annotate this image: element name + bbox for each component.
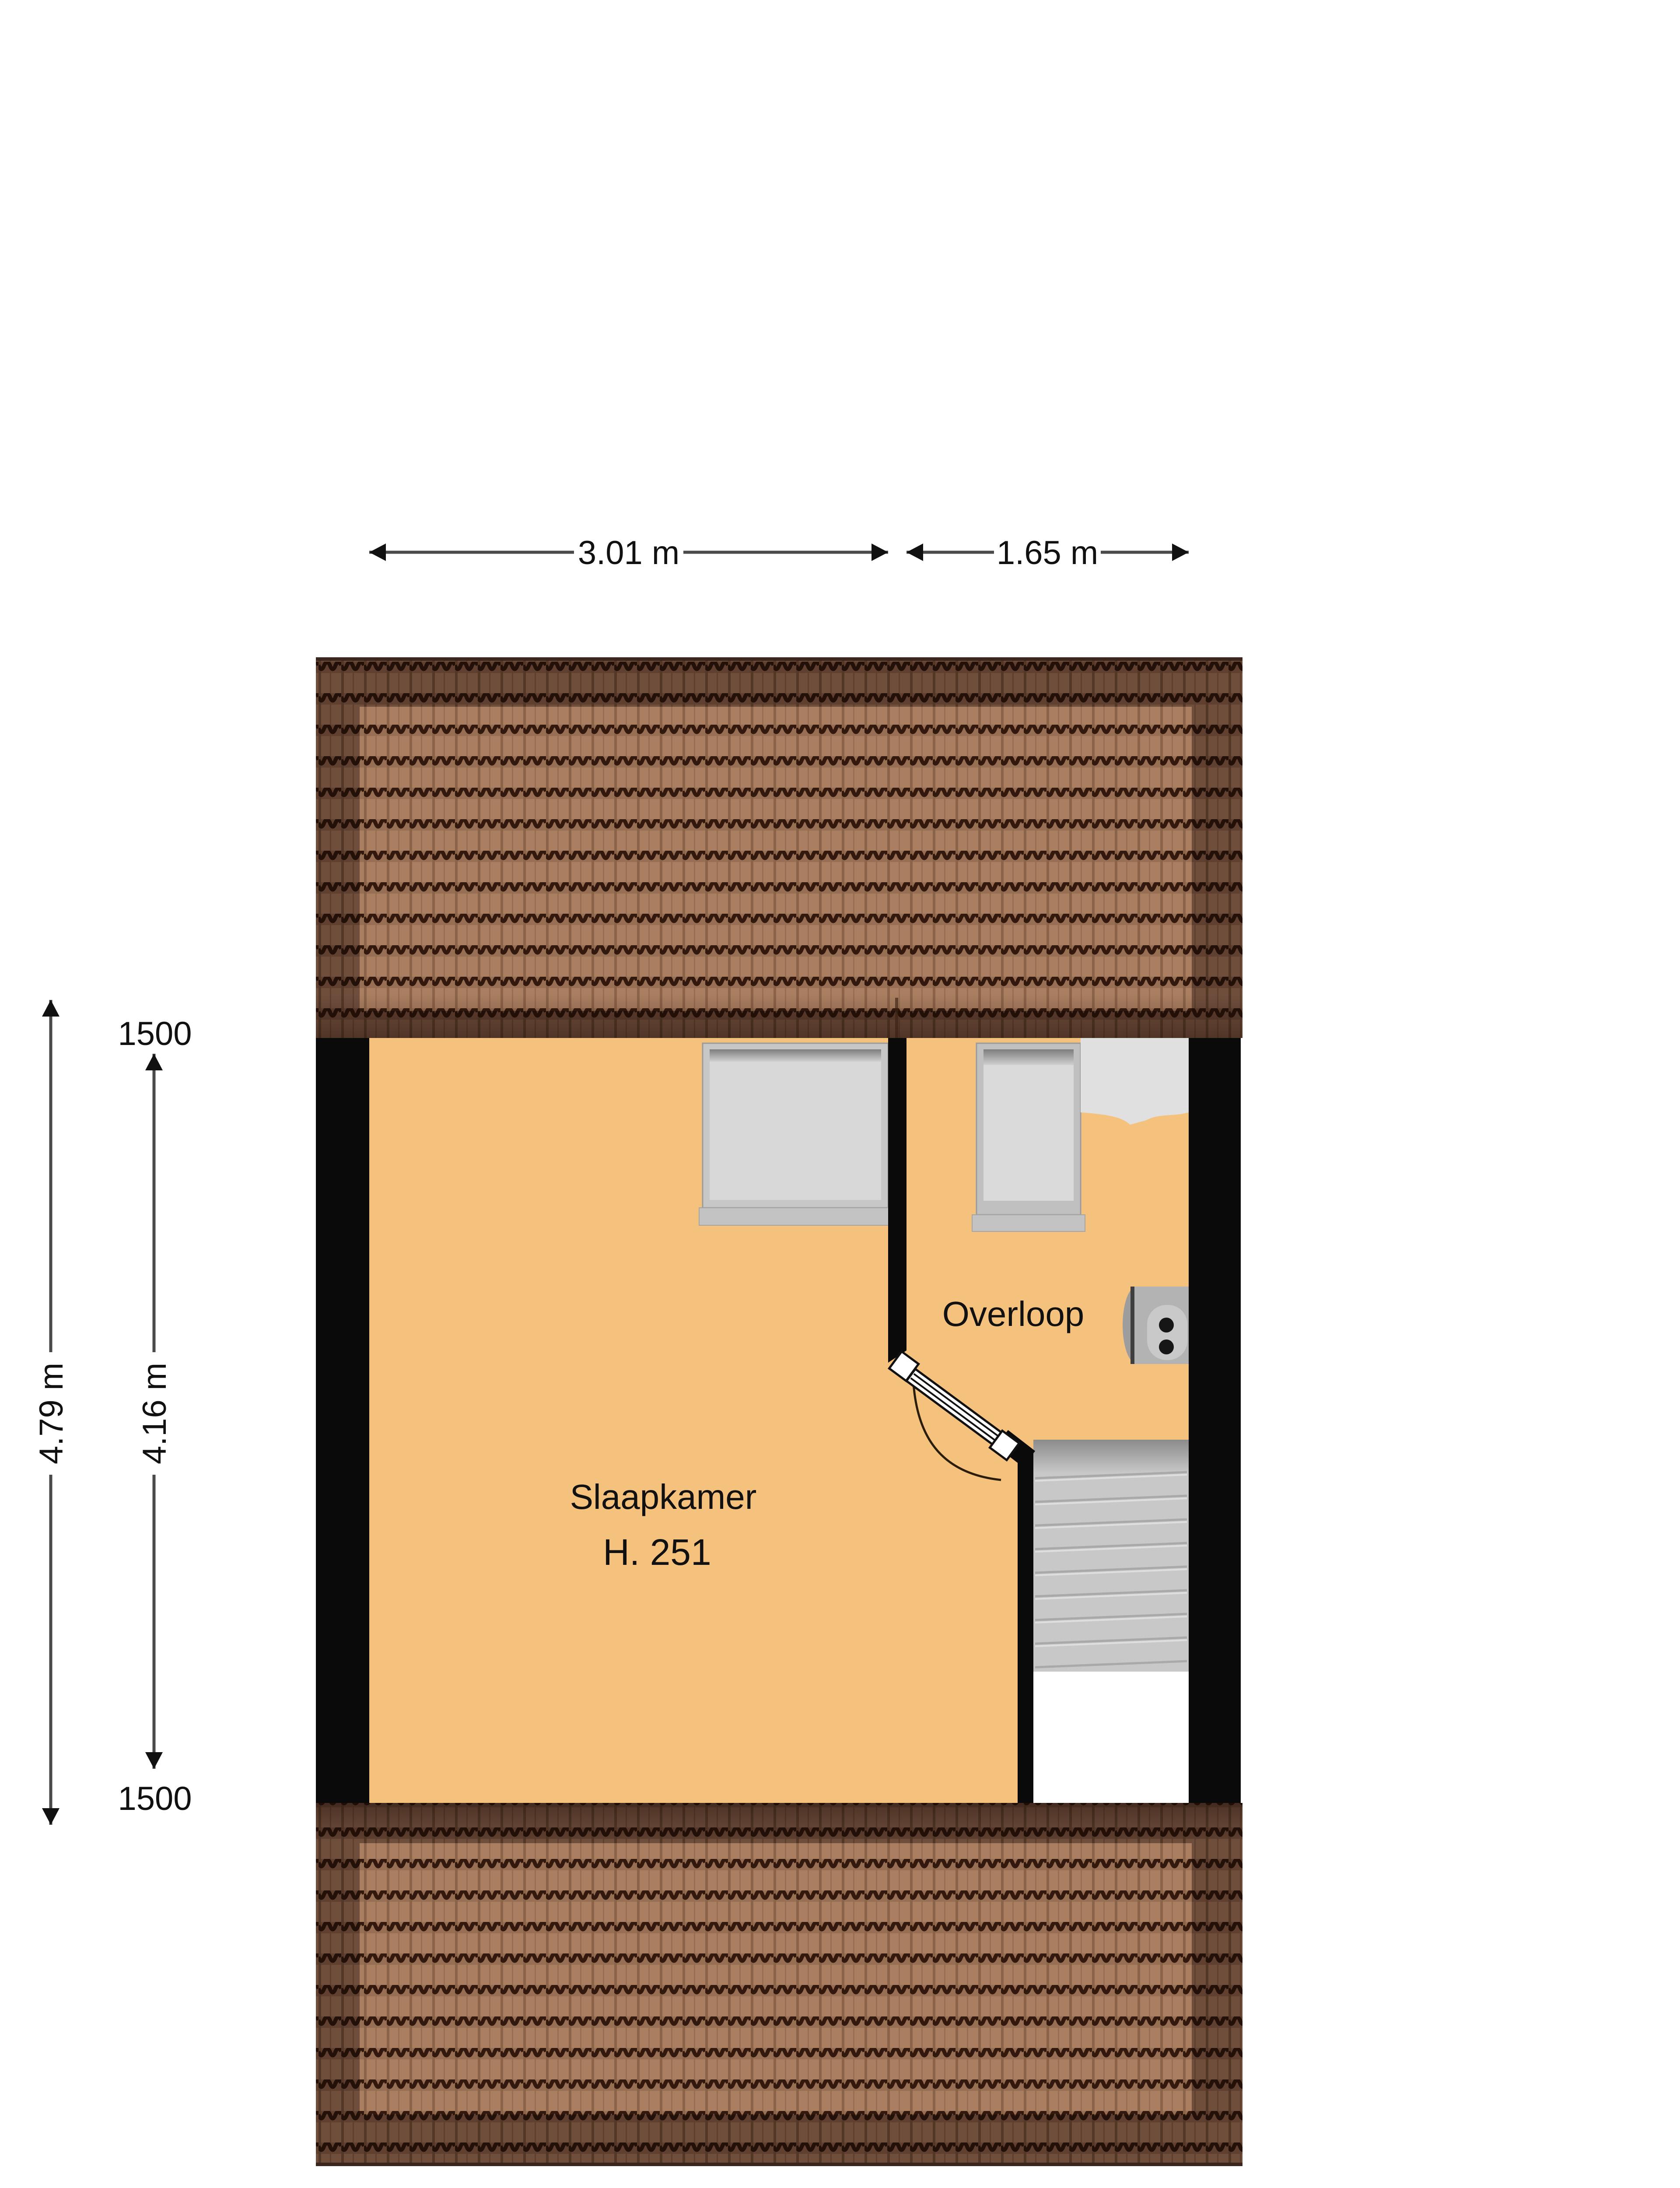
roof-bottom-edge-line xyxy=(316,2163,1242,2166)
wall-right xyxy=(1189,1038,1241,1803)
landing-window-top-shade xyxy=(983,1049,1074,1065)
dimension-left-inner: 4.16 m 1500 1500 xyxy=(118,1015,192,1817)
arrow-down-icon xyxy=(42,1808,59,1825)
bedroom-roof-window xyxy=(699,1043,892,1225)
roof-bottom-inset-panel xyxy=(360,1843,1192,2114)
roof-top-section xyxy=(316,657,1242,1038)
arrow-down-icon xyxy=(145,1752,163,1769)
bedroom-ceiling-label: H. 251 xyxy=(603,1532,711,1573)
dimension-left-inner-value: 4.16 m xyxy=(136,1363,173,1464)
sloped-ceiling-torn-area xyxy=(1081,1038,1189,1125)
bedroom-window-glass xyxy=(710,1051,881,1200)
roof-top-shadow xyxy=(316,994,1242,1038)
roof-bottom-section xyxy=(316,1803,1242,2166)
wall-left xyxy=(316,1038,369,1803)
roof-top-inset-panel xyxy=(360,707,1192,1011)
dimension-left-outer: 4.79 m xyxy=(31,1000,70,1825)
height-marker-bottom: 1500 xyxy=(118,1780,192,1817)
arrow-left-icon xyxy=(906,543,923,561)
landing-roof-window xyxy=(972,1043,1085,1231)
roof-bottom-shadow xyxy=(316,1803,1242,1842)
dimension-top-bedroom: 3.01 m xyxy=(369,533,888,572)
height-marker-top: 1500 xyxy=(118,1015,192,1052)
wall-divider xyxy=(888,1038,906,1363)
ventilation-unit xyxy=(1123,1287,1189,1364)
landing-label: Overloop xyxy=(942,1294,1085,1333)
stairwell-void xyxy=(1033,1672,1189,1803)
dimension-left-outer-value: 4.79 m xyxy=(33,1363,70,1464)
arrow-left-icon xyxy=(369,543,386,561)
ventilation-unit-edge-line xyxy=(1130,1287,1134,1364)
dimension-top-landing-value: 1.65 m xyxy=(997,534,1098,572)
landing-window-glass xyxy=(983,1063,1074,1201)
floorplan-canvas: Slaapkamer H. 251 Overloop 3.01 m 1.65 m… xyxy=(0,0,1680,2188)
arrow-up-icon xyxy=(42,1000,59,1017)
roof-divider-seam xyxy=(895,998,898,1038)
ventilation-outlet-top xyxy=(1159,1318,1174,1332)
ventilation-outlet-bottom xyxy=(1159,1339,1174,1354)
roof-top-edge-line xyxy=(316,657,1242,661)
staircase xyxy=(1033,1440,1189,1803)
bedroom-window-top-shade xyxy=(710,1049,881,1062)
wall-stairwell xyxy=(1018,1452,1033,1803)
arrow-right-icon xyxy=(1172,543,1189,561)
dimension-top-landing: 1.65 m xyxy=(906,533,1189,572)
bedroom-label: Slaapkamer xyxy=(570,1477,757,1516)
arrow-up-icon xyxy=(145,1054,163,1070)
arrow-right-icon xyxy=(871,543,888,561)
bedroom-window-sill xyxy=(699,1208,892,1225)
landing-window-sill xyxy=(972,1215,1085,1231)
stairs-top-shadow xyxy=(1033,1440,1189,1473)
dimension-top-bedroom-value: 3.01 m xyxy=(578,534,679,572)
